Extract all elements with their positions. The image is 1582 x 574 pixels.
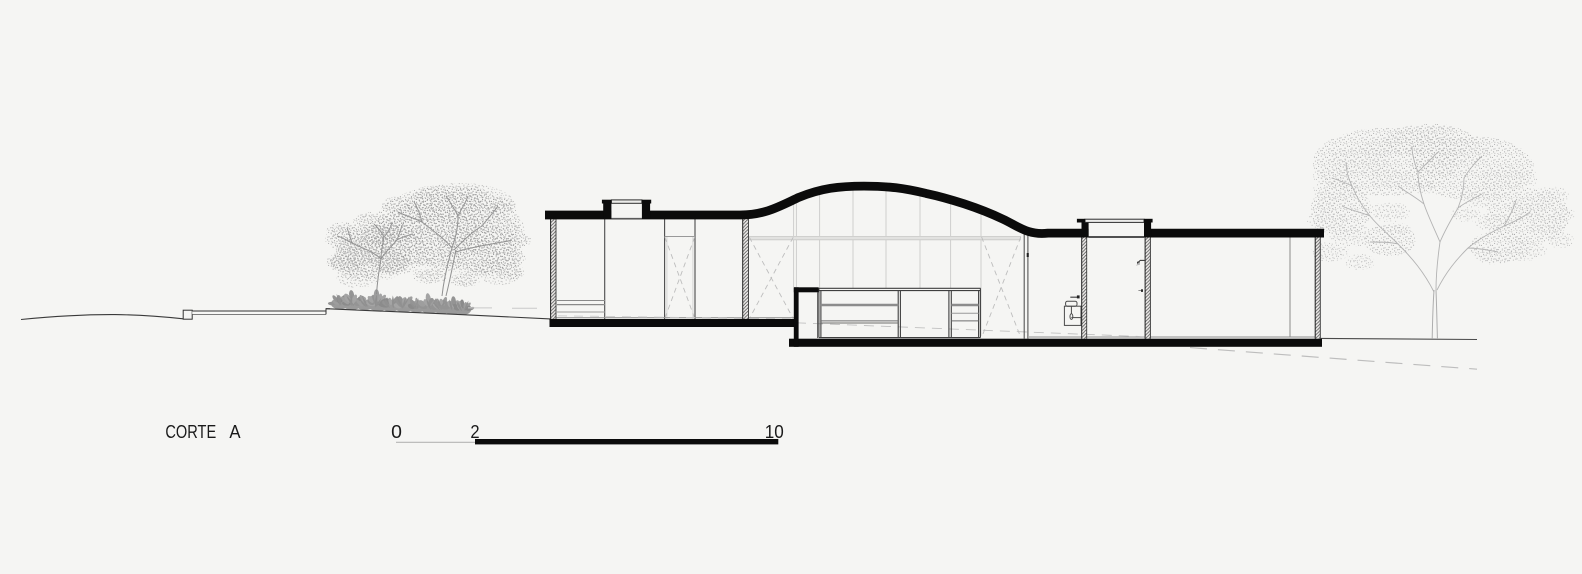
svg-text:0: 0 (391, 421, 402, 442)
svg-text:10: 10 (765, 421, 784, 442)
svg-text:A: A (229, 421, 241, 442)
svg-text:CORTE: CORTE (165, 421, 216, 442)
svg-text:2: 2 (470, 421, 479, 442)
